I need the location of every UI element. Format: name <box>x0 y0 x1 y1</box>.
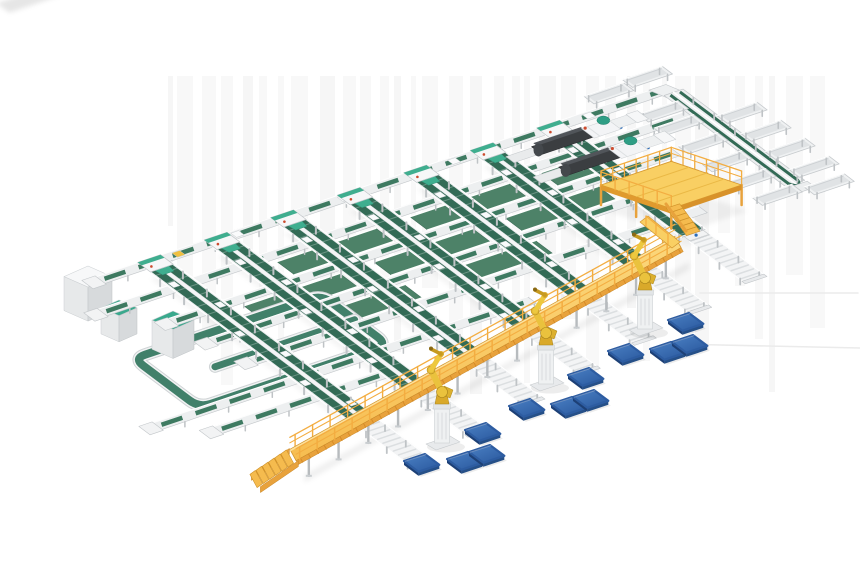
gantry-foot <box>663 277 669 279</box>
robot-gripper <box>429 347 433 351</box>
gantry-foot <box>306 475 312 477</box>
diverter-dot <box>483 153 486 156</box>
machine-front-cap <box>561 164 571 177</box>
machine-red-dot <box>584 127 587 130</box>
gantry-foot <box>395 425 401 427</box>
spine-end-dot <box>695 234 698 237</box>
diverter-dot <box>549 131 552 134</box>
gantry-foot <box>336 458 342 460</box>
gantry-stairs <box>250 448 299 492</box>
diverter-dot <box>416 176 419 179</box>
pedestal-cap <box>637 290 654 295</box>
robot-gripper <box>632 233 636 237</box>
machine-red-dot <box>611 147 614 150</box>
robot-shoulder-joint <box>437 387 448 398</box>
gantry-foot <box>455 393 461 395</box>
robot-gripper <box>533 288 537 292</box>
sortation-system-illustration <box>0 0 860 580</box>
gantry-foot <box>514 360 520 362</box>
gantry-foot <box>425 409 431 411</box>
pedestal-cap <box>434 404 451 409</box>
gantry-foot <box>365 442 371 444</box>
robot-shoulder-joint <box>541 328 552 339</box>
streak <box>243 76 253 268</box>
machine-dome <box>624 137 637 145</box>
gantry-foot <box>484 376 490 378</box>
robot-shoulder-joint <box>640 273 651 284</box>
machine-front-cap <box>534 143 544 156</box>
pedestal-cap <box>538 345 555 350</box>
diverter-dot <box>350 198 353 201</box>
diverter-dot <box>283 220 286 223</box>
factory-render-stage <box>0 0 860 580</box>
gantry-foot <box>603 310 609 312</box>
streak <box>810 76 825 328</box>
machine-dome <box>597 116 610 124</box>
diverter-dot <box>217 243 220 246</box>
streak <box>168 76 173 226</box>
blue-pallet <box>509 399 547 422</box>
diverter-dot <box>150 265 153 268</box>
machine-shadow <box>0 0 108 13</box>
gantry-foot <box>574 327 580 329</box>
blue-pallet <box>608 344 646 367</box>
